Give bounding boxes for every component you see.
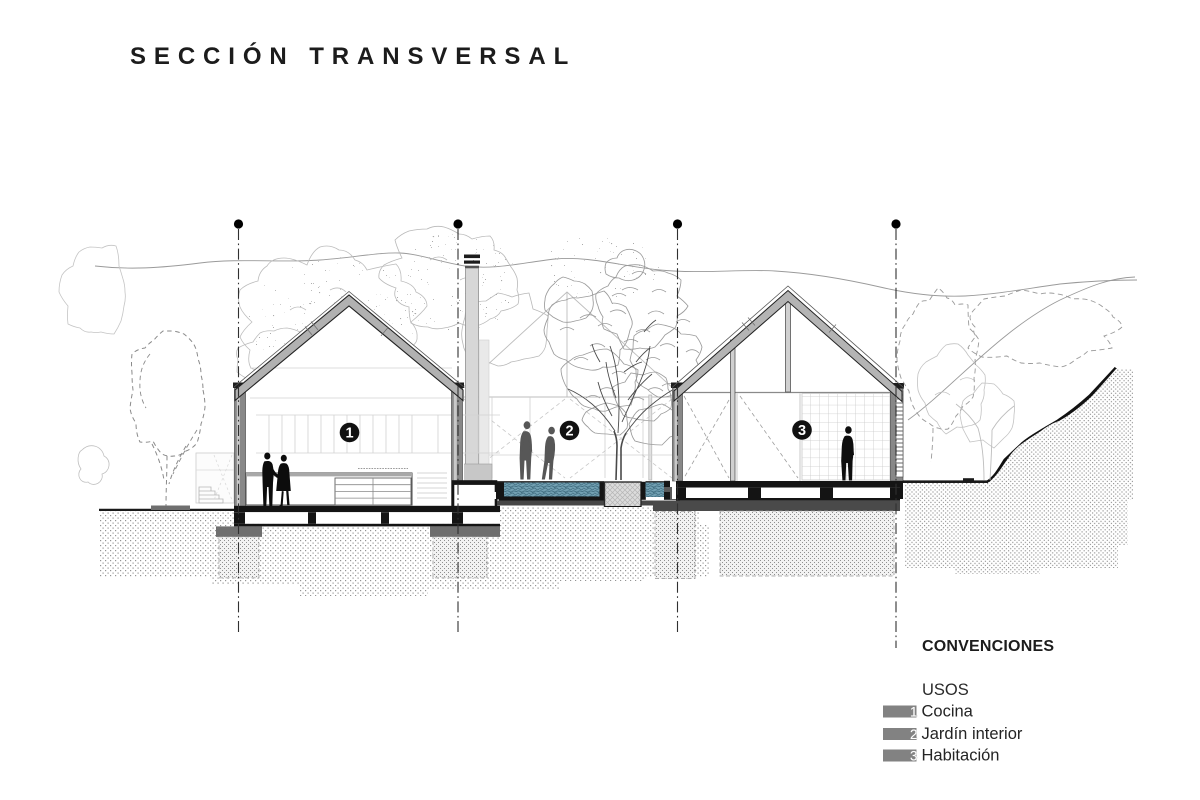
svg-text:1: 1: [910, 704, 918, 719]
svg-text:1: 1: [345, 426, 353, 442]
svg-text:2: 2: [565, 424, 573, 440]
svg-text:Habitación: Habitación: [922, 747, 1000, 765]
svg-text:Cocina: Cocina: [922, 703, 974, 721]
svg-text:CONVENCIONES: CONVENCIONES: [922, 638, 1054, 655]
svg-text:2: 2: [910, 727, 918, 742]
svg-text:SECCIÓN TRANSVERSAL: SECCIÓN TRANSVERSAL: [130, 42, 576, 70]
svg-text:USOS: USOS: [922, 681, 969, 699]
svg-text:Jardín interior: Jardín interior: [922, 725, 1023, 743]
svg-text:3: 3: [910, 748, 918, 763]
svg-text:3: 3: [798, 423, 806, 439]
